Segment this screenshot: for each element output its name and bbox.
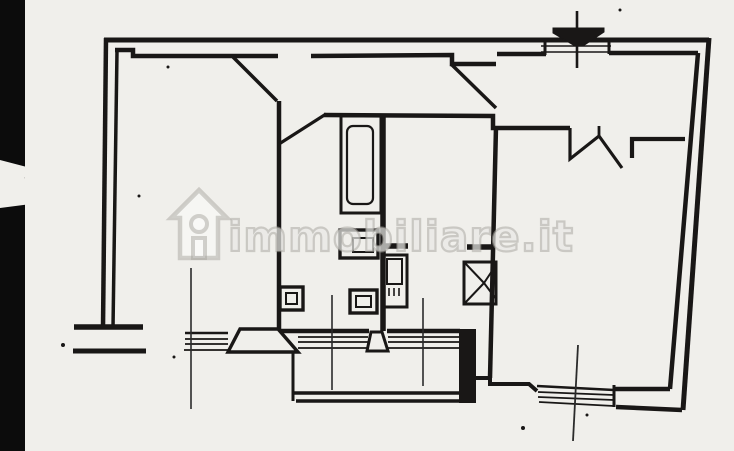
speck-6 — [138, 195, 141, 198]
speck-4 — [521, 426, 525, 430]
inner-wall-left — [113, 51, 117, 328]
livingroom-wall-left — [490, 127, 496, 378]
kitchen-wall-stub — [632, 139, 685, 158]
speck-1 — [167, 66, 170, 69]
entry-door-leaf — [233, 57, 277, 101]
wm-house-window — [191, 216, 207, 232]
flue-symbol — [553, 28, 604, 46]
shower-line-2 — [464, 283, 484, 304]
wc-outer — [350, 290, 377, 313]
inner-wall-top-b — [311, 55, 496, 64]
floor-plan-page: immobiliare.it — [0, 0, 734, 451]
speck-2 — [61, 343, 65, 347]
shower-line-1 — [464, 262, 484, 283]
outer-wall-left — [103, 38, 106, 328]
scan-edge-bar — [0, 0, 25, 451]
balcony-threshold-mid — [367, 332, 388, 351]
washbasin-inner — [353, 238, 373, 252]
livingroom-door-zigzag — [570, 128, 622, 168]
speck-3 — [173, 356, 176, 359]
wm-house-door — [193, 238, 205, 258]
bath-door-leaf — [279, 114, 326, 144]
wc-inner — [356, 296, 371, 307]
bidet-inner — [286, 293, 297, 304]
speck-7 — [619, 9, 622, 12]
livingroom-wall-bottom-outer — [616, 407, 682, 410]
livingroom-door-leaf — [451, 64, 496, 108]
bathtub-inner — [347, 126, 373, 204]
balcony-right-pier — [459, 329, 476, 403]
inner-wall-top-a — [115, 50, 278, 56]
bidet-outer — [280, 287, 303, 310]
water-heater-inner — [387, 259, 402, 284]
floor-plan-drawing — [0, 0, 734, 451]
scan-edge-notch — [0, 160, 88, 208]
br-window-sill-4 — [539, 402, 614, 406]
speck-5 — [586, 414, 589, 417]
balcony-step-wall — [476, 378, 537, 391]
